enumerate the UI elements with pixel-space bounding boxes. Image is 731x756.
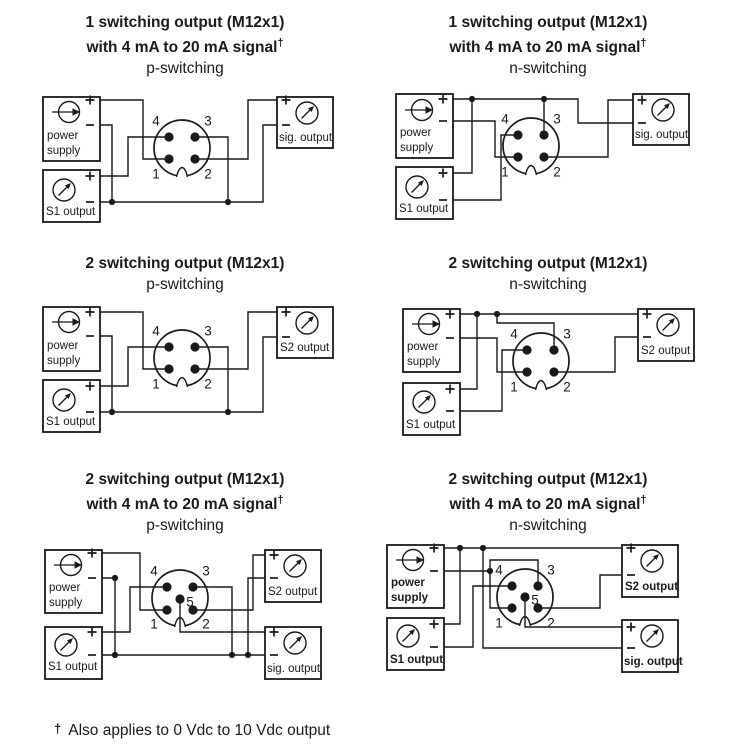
pin-4-label: 4 xyxy=(150,564,158,579)
wire xyxy=(248,578,265,655)
pin-3-contact xyxy=(539,130,548,139)
pin-3-label: 3 xyxy=(553,112,561,127)
sig-output-box: sig. output xyxy=(622,620,683,672)
switching-mode-label: p-switching xyxy=(5,274,365,295)
pin-3-label: 3 xyxy=(547,563,555,578)
s1-output-box: S1 output xyxy=(387,618,444,670)
switching-mode-label: n-switching xyxy=(368,274,728,295)
s2-output-box: S2 output xyxy=(638,309,694,361)
s1-output-box: S1 output xyxy=(43,170,100,222)
title-line: with 4 mA to 20 mA signal† xyxy=(368,33,728,58)
s1-output-label: S1 output xyxy=(390,654,443,666)
sig-output-label: sig. output xyxy=(635,129,689,141)
diagram-d2: 4312powersupplyS1 outputsig. output xyxy=(396,94,689,219)
power-supply-box: powersupply xyxy=(403,309,460,372)
title-line: with 4 mA to 20 mA signal† xyxy=(5,33,365,58)
junction-dot xyxy=(487,568,493,574)
power-supply-label: power xyxy=(47,130,78,142)
power-supply-label: supply xyxy=(391,592,429,604)
pin-4-label: 4 xyxy=(152,114,160,129)
wire xyxy=(102,578,115,655)
pin-2-label: 2 xyxy=(563,380,571,395)
junction-dot xyxy=(112,652,118,658)
s1-output-box: S1 output xyxy=(45,627,102,679)
diagram-d6: 43125powersupplyS1 outputS2 outputsig. o… xyxy=(387,544,683,673)
pin-3-contact xyxy=(533,581,542,590)
pin-2-contact xyxy=(190,364,199,373)
diagram5-title: 2 switching output (M12x1) with 4 mA to … xyxy=(5,469,365,536)
junction-dot xyxy=(225,409,231,415)
pin-4-label: 4 xyxy=(501,112,509,127)
pin-1-contact xyxy=(507,603,516,612)
pin-2-label: 2 xyxy=(202,617,210,632)
pin-2-label: 2 xyxy=(547,616,555,631)
power-supply-label: power xyxy=(47,340,78,352)
junction-dot xyxy=(229,652,235,658)
pin-1-contact xyxy=(164,364,173,373)
pin-4-contact xyxy=(164,342,173,351)
title-line: with 4 mA to 20 mA signal† xyxy=(368,490,728,515)
power-supply-box: powersupply xyxy=(43,96,100,162)
wire xyxy=(100,125,112,202)
s2-output-box: S2 output xyxy=(265,550,321,602)
pin-2-label: 2 xyxy=(204,377,212,392)
sig-output-box: sig. output xyxy=(633,94,689,145)
s2-output-label: S2 output xyxy=(641,345,691,357)
power-supply-box: powersupply xyxy=(387,544,444,609)
pin-3-contact xyxy=(190,132,199,141)
power-supply-label: power xyxy=(391,577,425,589)
switching-mode-label: p-switching xyxy=(5,515,365,536)
sig-output-label: sig. output xyxy=(279,132,333,144)
switching-mode-label: n-switching xyxy=(368,58,728,79)
diagram-d4: 4312powersupplyS1 outputS2 output xyxy=(403,309,694,435)
pin-3-contact xyxy=(190,342,199,351)
pin-4-contact xyxy=(522,345,531,354)
dagger-mark: † xyxy=(54,721,61,736)
pin-1-label: 1 xyxy=(152,377,160,392)
s1-output-box: S1 output xyxy=(403,383,460,435)
pin-2-contact xyxy=(549,367,558,376)
junction-dot xyxy=(109,409,115,415)
title-line: 1 switching output (M12x1) xyxy=(368,12,728,33)
pin-1-contact xyxy=(162,605,171,614)
wiring-diagrams-canvas: 4312powersupplyS1 outputsig. output4312p… xyxy=(0,0,731,756)
pin-1-label: 1 xyxy=(495,616,503,631)
pin-4-contact xyxy=(164,132,173,141)
pin-3-label: 3 xyxy=(204,324,212,339)
pin-3-label: 3 xyxy=(202,564,210,579)
diagram1-title: 1 switching output (M12x1) with 4 mA to … xyxy=(5,12,365,79)
footnote: †Also applies to 0 Vdc to 10 Vdc output xyxy=(54,722,330,740)
footnote-text: Also applies to 0 Vdc to 10 Vdc output xyxy=(68,722,330,739)
power-supply-label: supply xyxy=(407,356,440,368)
diagram6-title: 2 switching output (M12x1) with 4 mA to … xyxy=(368,469,728,536)
switching-mode-label: n-switching xyxy=(368,515,728,536)
diagram-d5: 43125powersupplyS1 outputS2 outputsig. o… xyxy=(45,549,321,680)
s1-output-label: S1 output xyxy=(46,416,96,428)
dagger-mark: † xyxy=(640,37,646,49)
s2-output-label: S2 output xyxy=(268,586,318,598)
dagger-mark: † xyxy=(277,37,283,49)
switching-mode-label: p-switching xyxy=(5,58,365,79)
pin-5-contact xyxy=(175,594,184,603)
pin-2-contact xyxy=(539,152,548,161)
power-supply-box: powersupply xyxy=(45,549,102,614)
s1-output-label: S1 output xyxy=(406,419,456,431)
pin-5-contact xyxy=(520,592,529,601)
title-line: with 4 mA to 20 mA signal† xyxy=(5,490,365,515)
pin-5-label: 5 xyxy=(186,595,194,610)
s1-output-label: S1 output xyxy=(48,661,98,673)
pin-3-label: 3 xyxy=(563,327,571,342)
pin-2-label: 2 xyxy=(204,167,212,182)
pin-5-label: 5 xyxy=(531,593,539,608)
pin-4-contact xyxy=(162,582,171,591)
power-supply-label: supply xyxy=(47,145,80,157)
junction-dot xyxy=(480,545,486,551)
s2-output-box: S2 output xyxy=(277,307,333,358)
junction-dot xyxy=(541,96,547,102)
power-supply-label: supply xyxy=(49,597,82,609)
power-supply-box: powersupply xyxy=(396,94,453,158)
junction-dot xyxy=(474,311,480,317)
junction-dot xyxy=(245,652,251,658)
wire xyxy=(453,99,472,173)
pin-1-contact xyxy=(513,152,522,161)
title-line: 1 switching output (M12x1) xyxy=(5,12,365,33)
s1-output-label: S1 output xyxy=(46,206,96,218)
pin-4-contact xyxy=(513,130,522,139)
pin-1-contact xyxy=(164,154,173,163)
power-supply-label: supply xyxy=(47,355,80,367)
diagram4-title: 2 switching output (M12x1) n-switching xyxy=(368,253,728,295)
pin-3-contact xyxy=(188,582,197,591)
wiring-diagram-page: 4312powersupplyS1 outputsig. output4312p… xyxy=(0,0,731,756)
power-supply-label: power xyxy=(400,127,431,139)
pin-1-label: 1 xyxy=(152,167,160,182)
s2-output-label: S2 output xyxy=(280,342,330,354)
power-supply-label: power xyxy=(407,341,438,353)
wire xyxy=(453,99,633,123)
pin-4-label: 4 xyxy=(495,563,503,578)
wire xyxy=(100,336,112,412)
pin-4-contact xyxy=(507,581,516,590)
power-supply-box: powersupply xyxy=(43,307,100,371)
title-line: 2 switching output (M12x1) xyxy=(5,253,365,274)
title-line: 2 switching output (M12x1) xyxy=(5,469,365,490)
wire xyxy=(443,548,460,624)
dagger-mark: † xyxy=(277,494,283,506)
s2-output-box: S2 output xyxy=(622,544,678,598)
pin-3-label: 3 xyxy=(204,114,212,129)
title-line: 2 switching output (M12x1) xyxy=(368,469,728,490)
junction-dot xyxy=(457,545,463,551)
pin-2-label: 2 xyxy=(553,165,561,180)
diagram3-title: 2 switching output (M12x1) p-switching xyxy=(5,253,365,295)
diagram2-title: 1 switching output (M12x1) with 4 mA to … xyxy=(368,12,728,79)
junction-dot xyxy=(469,96,475,102)
power-supply-label: power xyxy=(49,582,80,594)
s1-output-box: S1 output xyxy=(43,380,100,432)
junction-dot xyxy=(112,575,118,581)
pin-1-label: 1 xyxy=(150,617,158,632)
pin-3-contact xyxy=(549,345,558,354)
s1-output-box: S1 output xyxy=(396,167,453,219)
pin-4-label: 4 xyxy=(510,327,518,342)
wire xyxy=(460,314,477,389)
pin-1-label: 1 xyxy=(510,380,518,395)
sig-output-label: sig. output xyxy=(624,656,683,668)
power-supply-label: supply xyxy=(400,142,433,154)
pin-4-label: 4 xyxy=(152,324,160,339)
pin-1-contact xyxy=(522,367,531,376)
diagram-d3: 4312powersupplyS1 outputS2 output xyxy=(43,307,333,432)
pin-1-label: 1 xyxy=(501,165,509,180)
junction-dot xyxy=(494,311,500,317)
pin-2-contact xyxy=(190,154,199,163)
dagger-mark: † xyxy=(640,494,646,506)
title-line: 2 switching output (M12x1) xyxy=(368,253,728,274)
junction-dot xyxy=(225,199,231,205)
sig-output-box: sig. output xyxy=(265,627,321,679)
junction-dot xyxy=(109,199,115,205)
s1-output-label: S1 output xyxy=(399,203,449,215)
s2-output-label: S2 output xyxy=(625,581,678,593)
diagram-d1: 4312powersupplyS1 outputsig. output xyxy=(43,96,333,223)
sig-output-box: sig. output xyxy=(277,96,333,149)
sig-output-label: sig. output xyxy=(267,663,321,675)
